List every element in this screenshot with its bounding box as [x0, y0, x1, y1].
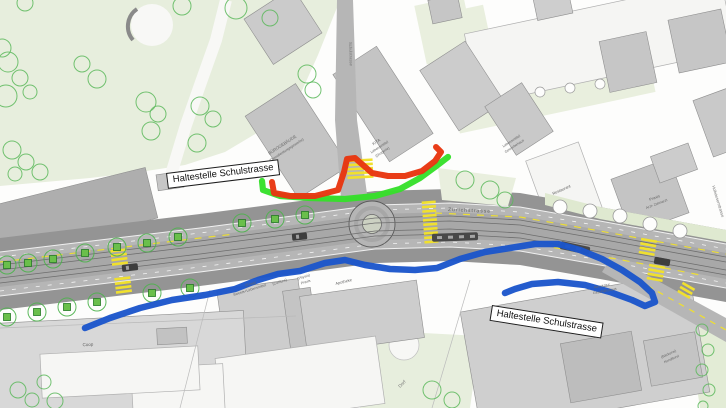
site-plan-canvas: BÜROGEBÄUDE (Dienstleistungsgewerbe) KIT… — [0, 0, 726, 408]
tree-planter — [25, 260, 32, 267]
tree-planter — [64, 304, 71, 311]
verge-tree — [613, 209, 627, 223]
building — [693, 87, 726, 157]
tree-planter — [187, 285, 194, 292]
courtyard-tree — [535, 87, 545, 97]
street-name-north: Schulstrasse — [348, 42, 354, 67]
courtyard-tree — [565, 83, 575, 93]
courtyard-tree — [595, 79, 605, 89]
tree-planter — [4, 314, 11, 321]
shop-label: Apotheke — [335, 277, 353, 286]
tree-planter — [34, 309, 41, 316]
roundabout — [349, 201, 395, 247]
tree-planter — [272, 216, 279, 223]
parcel — [40, 346, 200, 398]
site-plan: BÜROGEBÄUDE (Dienstleistungsgewerbe) KIT… — [0, 0, 726, 408]
tree-planter — [50, 256, 57, 263]
tram — [432, 232, 478, 242]
tree-planter — [4, 262, 11, 269]
shop-label: Coop — [82, 342, 94, 348]
verge-tree — [643, 217, 657, 231]
tree-planter — [82, 250, 89, 257]
building — [157, 327, 188, 345]
tree-planter — [302, 212, 309, 219]
verge-tree — [583, 204, 597, 218]
verge-tree — [673, 224, 687, 238]
building — [560, 331, 641, 403]
corner-green — [438, 168, 516, 206]
tree-planter — [94, 299, 101, 306]
building — [668, 9, 726, 73]
street-name-east: Hofwiesenstrasse — [711, 185, 726, 219]
tree-planter — [239, 220, 246, 227]
verge-tree — [553, 200, 567, 214]
building — [650, 143, 697, 183]
building — [599, 32, 657, 93]
tree-planter — [144, 240, 151, 247]
tree-canopy — [305, 82, 321, 98]
tree-planter — [114, 244, 121, 251]
tree-planter — [175, 234, 182, 241]
tree-planter — [149, 290, 156, 297]
